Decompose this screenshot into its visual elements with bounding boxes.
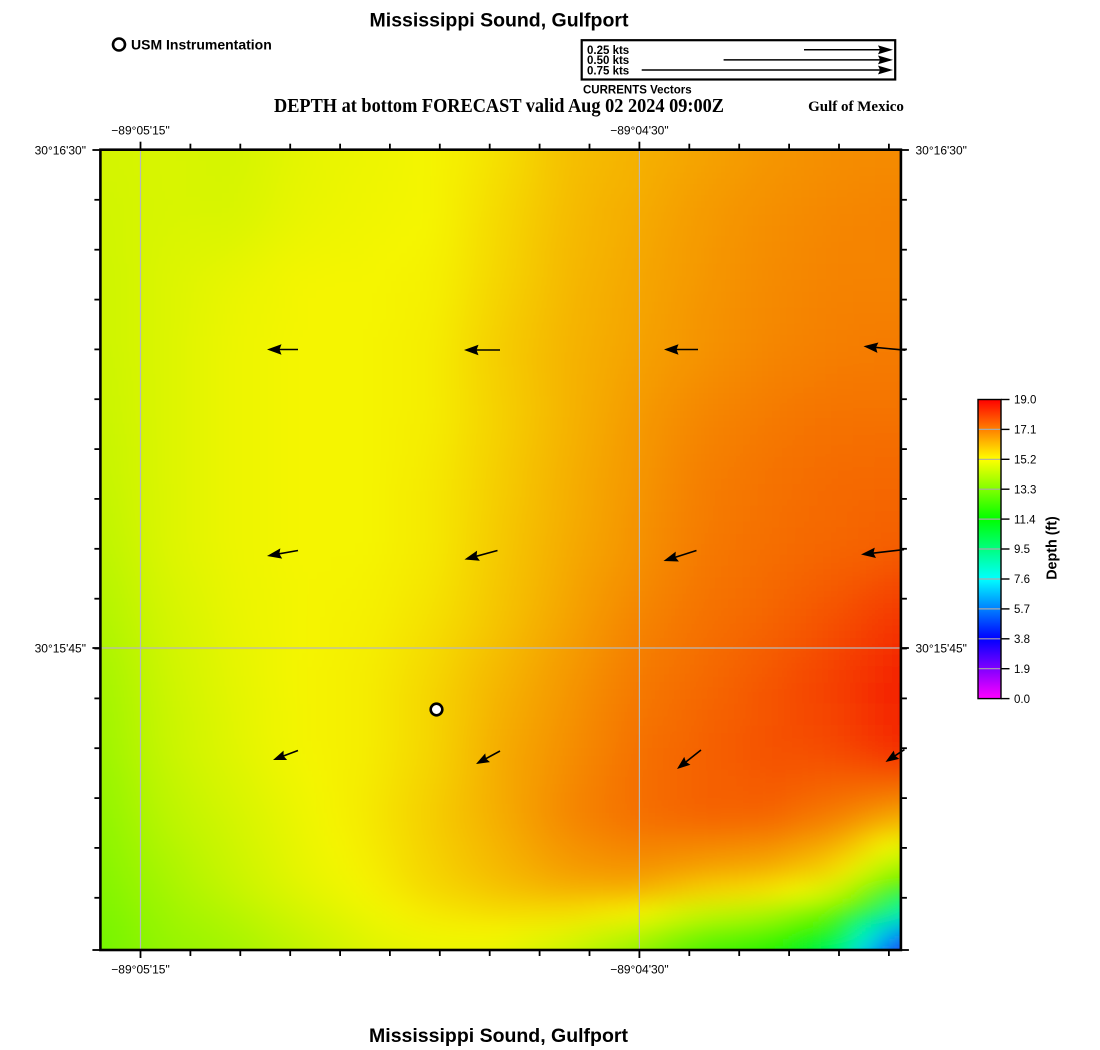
svg-text:−89°04'30": −89°04'30" [610, 124, 668, 138]
svg-text:19.0: 19.0 [1014, 395, 1036, 407]
svg-text:30°15'45": 30°15'45" [916, 641, 967, 655]
svg-text:30°16'30": 30°16'30" [916, 143, 967, 157]
svg-text:3.8: 3.8 [1014, 634, 1030, 646]
svg-text:17.1: 17.1 [1014, 425, 1036, 437]
svg-text:Depth (ft): Depth (ft) [1045, 516, 1061, 580]
svg-text:Mississippi Sound, Gulfport: Mississippi Sound, Gulfport [370, 10, 629, 32]
svg-text:7.6: 7.6 [1014, 574, 1030, 586]
svg-text:0.75 kts: 0.75 kts [587, 65, 629, 77]
svg-text:−89°05'15": −89°05'15" [111, 124, 169, 138]
svg-text:0.0: 0.0 [1014, 694, 1030, 706]
svg-text:Gulf of Mexico: Gulf of Mexico [808, 99, 904, 115]
svg-text:5.7: 5.7 [1014, 604, 1030, 616]
svg-text:DEPTH at bottom FORECAST valid: DEPTH at bottom FORECAST valid Aug 02 20… [274, 96, 724, 117]
svg-text:−89°04'30": −89°04'30" [610, 963, 668, 977]
svg-text:11.4: 11.4 [1014, 514, 1036, 526]
svg-text:30°16'30": 30°16'30" [35, 143, 86, 157]
svg-text:−89°05'15": −89°05'15" [111, 963, 169, 977]
svg-text:1.9: 1.9 [1014, 664, 1030, 676]
svg-text:Mississippi Sound, Gulfport: Mississippi Sound, Gulfport [369, 1025, 628, 1047]
svg-text:USM Instrumentation: USM Instrumentation [131, 37, 272, 53]
svg-text:9.5: 9.5 [1014, 544, 1030, 556]
svg-text:30°15'45": 30°15'45" [35, 641, 86, 655]
svg-text:15.2: 15.2 [1014, 455, 1036, 467]
svg-text:CURRENTS Vectors: CURRENTS Vectors [583, 84, 692, 96]
svg-text:13.3: 13.3 [1014, 484, 1036, 496]
